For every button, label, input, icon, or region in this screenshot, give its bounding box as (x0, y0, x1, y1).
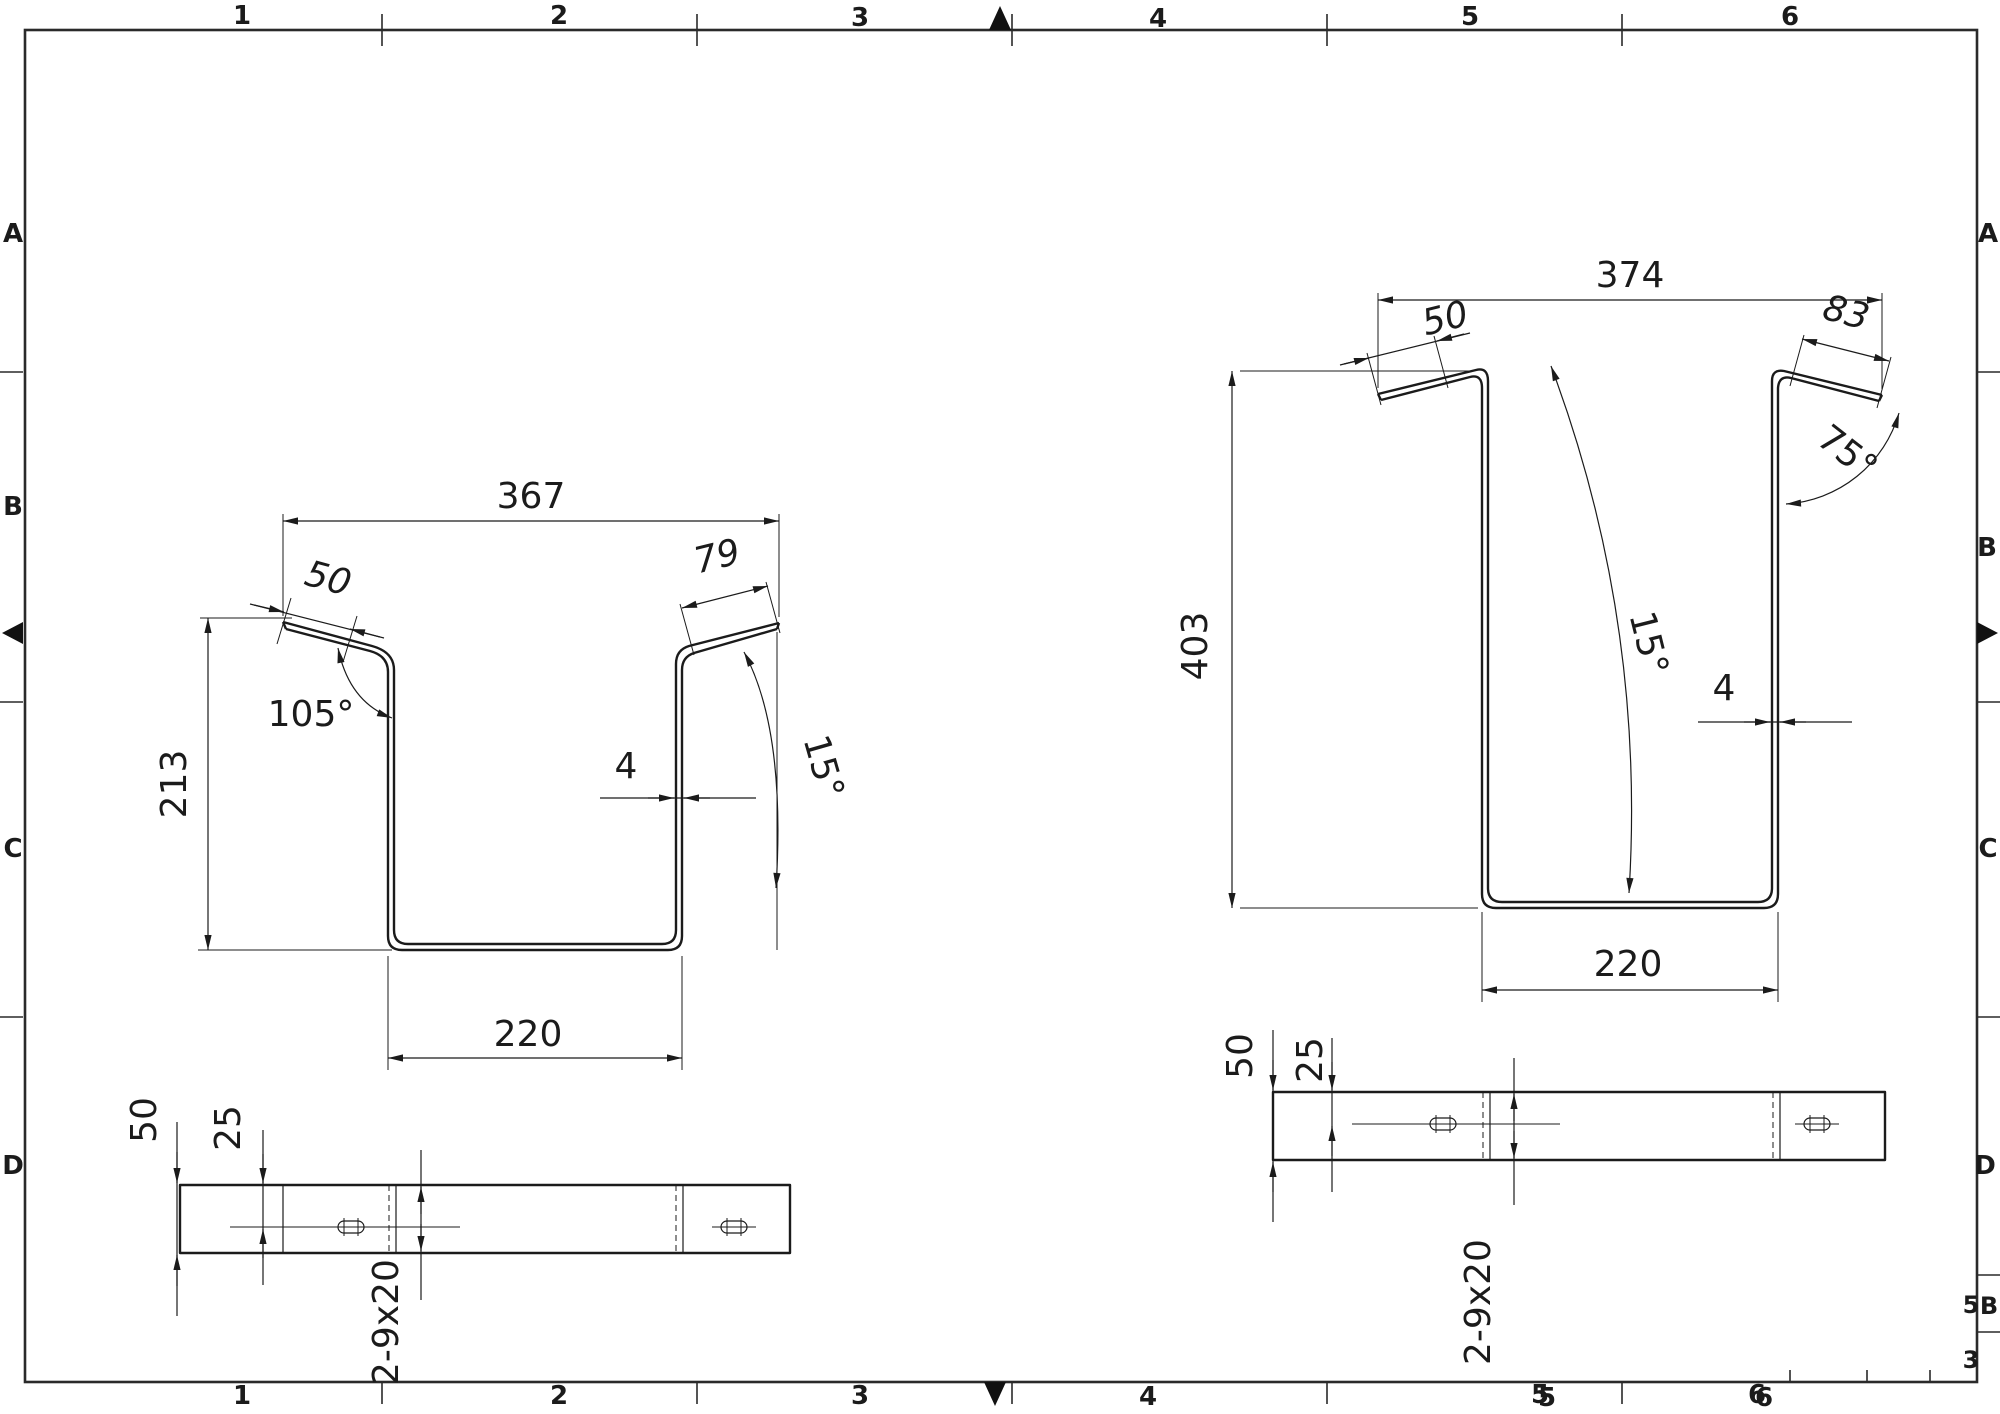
zone-label-bottom-1: 1 (233, 1381, 251, 1411)
zone-label-bottom-4: 4 (1139, 1382, 1157, 1412)
svg-text:83: 83 (1819, 287, 1874, 338)
svg-text:79: 79 (690, 531, 744, 582)
centering-mark-left-icon (2, 622, 23, 644)
dim-right-bottom-width: 220 (1482, 912, 1778, 1002)
zone-label-right-C: C (1978, 834, 1997, 864)
svg-text:50: 50 (1418, 293, 1472, 344)
view-profile-left: 367 50 79 105° 213 (154, 476, 852, 1070)
dim-plan-right-to-center: 25 (1290, 1037, 1332, 1192)
svg-text:367: 367 (497, 476, 566, 517)
zone-label-right-B: B (1977, 533, 1997, 563)
svg-text:213: 213 (154, 750, 195, 819)
svg-text:403: 403 (1175, 612, 1216, 681)
svg-text:374: 374 (1596, 255, 1665, 296)
dim-left-flange-angle: 105° (268, 648, 392, 735)
artifact-letter-B: B (1980, 1292, 1998, 1320)
centering-mark-top-icon (989, 6, 1011, 30)
svg-text:2-9x20: 2-9x20 (1458, 1239, 1499, 1365)
zone-label-top-5: 5 (1461, 2, 1479, 32)
svg-text:2-9x20: 2-9x20 (366, 1259, 407, 1385)
svg-text:4: 4 (615, 746, 638, 787)
plan-left-strip (180, 1185, 790, 1253)
dim-left-flange-left: 50 (250, 553, 384, 662)
svg-text:15°: 15° (1621, 607, 1676, 679)
zone-label-bottom-2: 2 (550, 1381, 568, 1411)
svg-text:25: 25 (1290, 1037, 1331, 1083)
drawing-canvas: 1 2 3 4 5 6 1 2 3 4 5 5 6 6 A B C D A B … (0, 0, 2000, 1414)
dim-left-wall-angle: 15° (744, 632, 852, 950)
dim-plan-right-slots: 2-9x20 (1458, 1058, 1514, 1365)
zone-label-bottom-5-ghost: 5 (1538, 1383, 1556, 1413)
view-plan-left: 50 25 2-9x20 (124, 1097, 790, 1385)
zone-label-left-B: B (3, 492, 23, 522)
dim-left-thickness: 4 (600, 746, 756, 798)
plan-right-slot (1795, 1115, 1839, 1133)
view-profile-right: 374 50 83 75° 403 (1175, 255, 1899, 1002)
svg-text:25: 25 (208, 1105, 249, 1151)
artifact-clipped-5: 5 (1963, 1291, 1980, 1319)
zone-label-top-6: 6 (1781, 2, 1799, 32)
profile-left-inner-contour (283, 622, 779, 944)
plan-left-slot (230, 1218, 460, 1236)
zone-label-top-2: 2 (550, 1, 568, 31)
zone-label-bottom-6-ghost: 6 (1755, 1383, 1773, 1413)
zone-label-bottom-3: 3 (851, 1381, 869, 1411)
centering-mark-bottom-icon (984, 1382, 1006, 1406)
centering-mark-right-icon (1977, 622, 1998, 644)
svg-text:50: 50 (301, 553, 356, 604)
zone-label-right-D: D (1974, 1151, 1996, 1181)
plan-left-slot (712, 1218, 756, 1236)
svg-text:105°: 105° (268, 694, 355, 735)
dim-plan-right-width: 50 (1220, 1030, 1273, 1222)
dim-plan-left-to-center: 25 (208, 1105, 263, 1285)
svg-text:220: 220 (494, 1014, 563, 1055)
svg-text:220: 220 (1594, 944, 1663, 985)
dim-right-wall-angle: 15° (1551, 366, 1676, 893)
dim-left-bottom-width: 220 (388, 956, 682, 1070)
plan-right-slot (1352, 1115, 1560, 1133)
plan-right-strip (1273, 1092, 1885, 1160)
svg-text:4: 4 (1713, 668, 1736, 709)
dim-left-height: 213 (154, 618, 392, 950)
profile-left-outer-contour (286, 629, 777, 950)
view-plan-right: 50 25 2-9x20 (1220, 1030, 1885, 1365)
zone-label-top-1: 1 (233, 1, 251, 31)
zone-label-left-D: D (2, 1151, 24, 1181)
zone-label-left-A: A (3, 219, 23, 249)
svg-text:15°: 15° (795, 731, 852, 804)
artifact-clipped-3: 3 (1963, 1346, 1980, 1374)
zone-label-right-A: A (1978, 219, 1998, 249)
dim-plan-left-width: 50 (124, 1097, 177, 1316)
svg-text:75°: 75° (1809, 417, 1885, 489)
dim-right-thickness: 4 (1698, 668, 1852, 722)
dim-right-flange-angle: 75° (1786, 413, 1899, 504)
zone-label-top-3: 3 (851, 3, 869, 33)
svg-text:50: 50 (1220, 1033, 1261, 1079)
zone-label-left-C: C (3, 834, 22, 864)
dim-right-height: 403 (1175, 371, 1478, 908)
svg-text:50: 50 (124, 1097, 165, 1143)
drawing-sheet: 1 2 3 4 5 6 1 2 3 4 5 5 6 6 A B C D A B … (0, 0, 2000, 1414)
zone-label-top-4: 4 (1149, 4, 1167, 34)
